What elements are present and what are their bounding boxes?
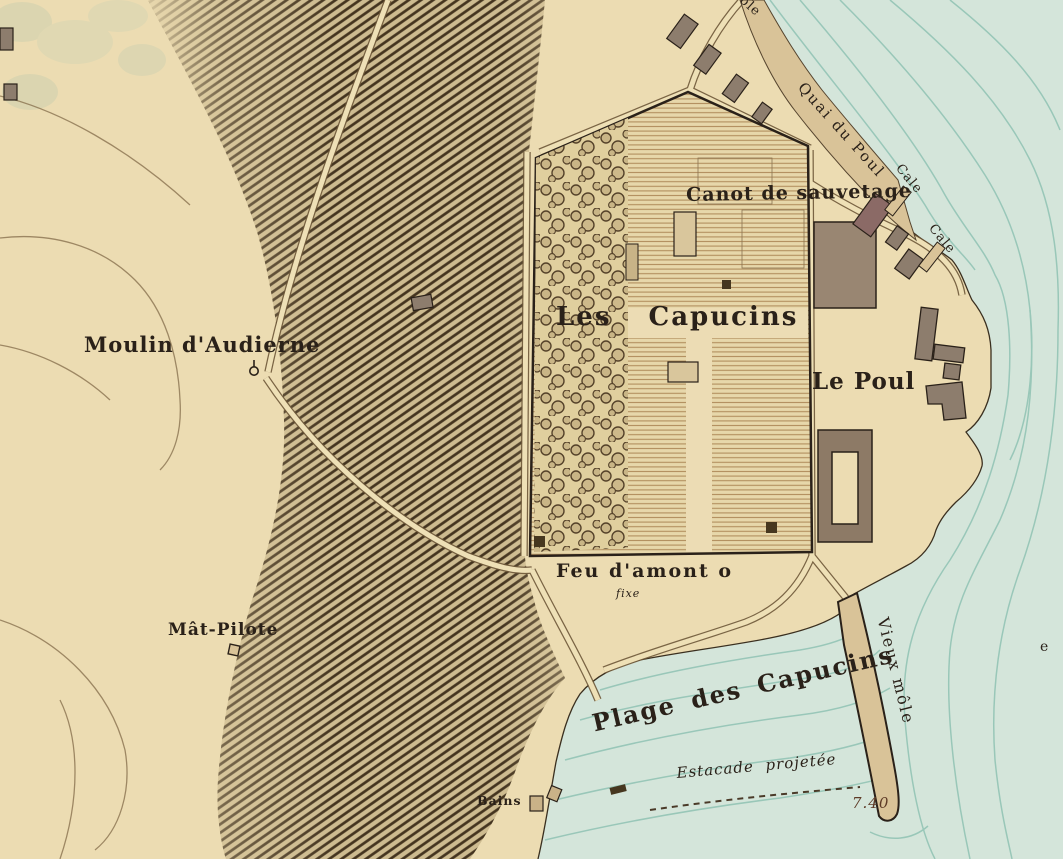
label-quai-du-poul: Quai du Poul: [795, 80, 887, 180]
label-moulin-d-audierne: Moulin d'Audierne: [84, 334, 320, 355]
label-feu-damont-note: fixe: [616, 588, 640, 599]
label-canot-de-sauvetage: Canot de sauvetage: [686, 182, 912, 205]
labels-layer: Moulin d'Audierne Mât-Pilote Les Capucin…: [0, 0, 1063, 859]
label-plage-des-capucins: Plage des Capucins: [590, 643, 896, 736]
label-mat-pilote: Mât-Pilote: [168, 622, 278, 639]
label-edge-right-partial: e: [1040, 640, 1049, 654]
label-edge-top-partial: ôle: [737, 0, 763, 19]
historic-harbor-map: Moulin d'Audierne Mât-Pilote Les Capucin…: [0, 0, 1063, 859]
label-les-capucins: Les Capucins: [556, 304, 798, 330]
label-le-poul: Le Poul: [812, 370, 915, 393]
label-estacade-projetee: Estacade projetée: [676, 752, 837, 781]
label-feu-damont: Feu d'amont o: [556, 562, 733, 581]
label-cale-2: Cale: [926, 222, 958, 256]
label-sounding: 7.40: [852, 796, 889, 811]
label-bains: Bains: [477, 795, 522, 808]
